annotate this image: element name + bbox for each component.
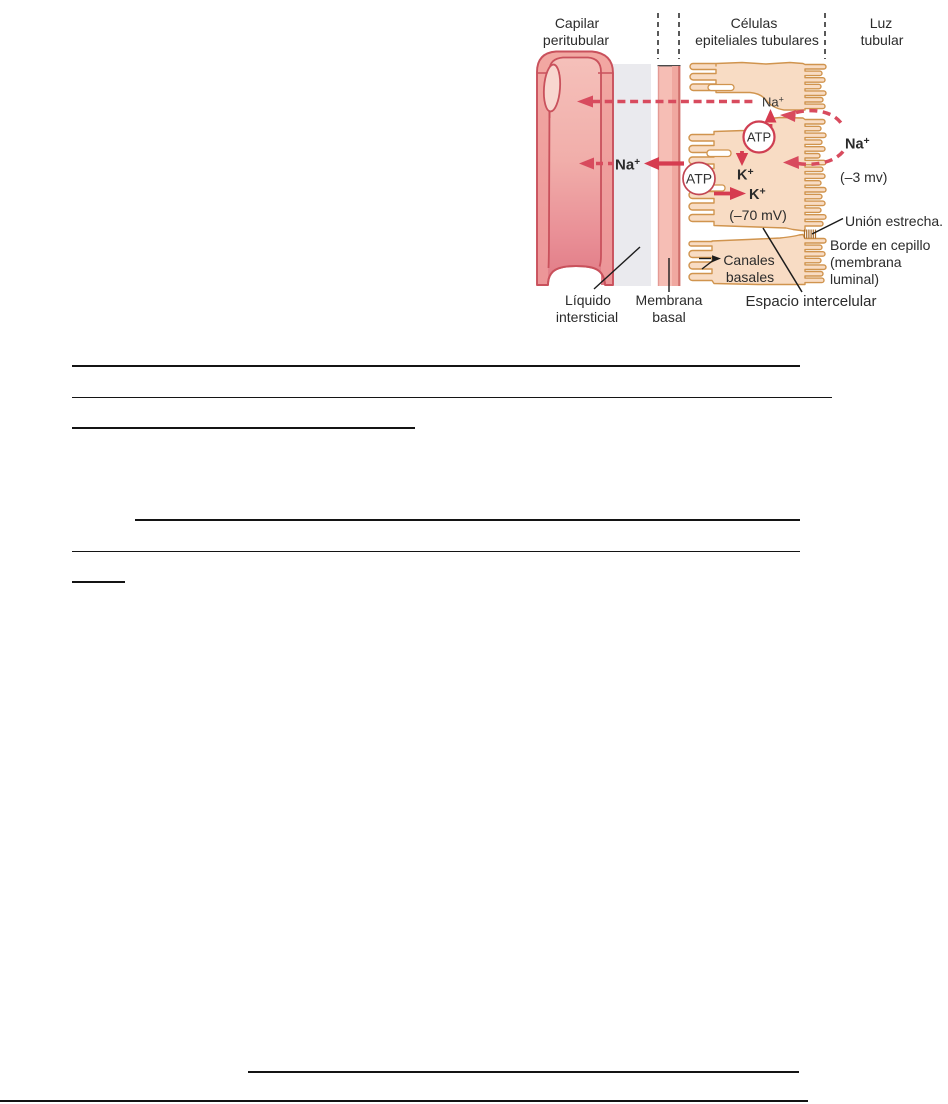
svg-text:(–3 mv): (–3 mv) (840, 169, 887, 185)
svg-text:Unión estrecha.: Unión estrecha. (845, 213, 943, 229)
svg-text:basal: basal (652, 309, 685, 325)
svg-text:ATP: ATP (686, 171, 712, 187)
svg-text:Canales: Canales (723, 252, 774, 268)
svg-text:epiteliales tubulares: epiteliales tubulares (695, 32, 819, 48)
svg-text:Células: Células (731, 15, 778, 31)
svg-text:Luz: Luz (870, 15, 893, 31)
svg-text:Na+: Na+ (845, 135, 870, 153)
svg-text:Capilar: Capilar (555, 15, 600, 31)
svg-text:(membrana: (membrana (830, 254, 902, 270)
svg-text:Líquido: Líquido (565, 292, 611, 308)
svg-text:ATP: ATP (747, 130, 771, 145)
svg-text:intersticial: intersticial (556, 309, 618, 325)
svg-text:peritubular: peritubular (543, 32, 609, 48)
svg-text:Borde en cepillo: Borde en cepillo (830, 237, 931, 253)
svg-text:tubular: tubular (861, 32, 904, 48)
svg-text:(–70 mV): (–70 mV) (729, 207, 787, 223)
svg-text:Membrana: Membrana (636, 292, 703, 308)
svg-text:Espacio intercelular: Espacio intercelular (746, 293, 877, 310)
svg-text:luminal): luminal) (830, 271, 879, 287)
svg-text:basales: basales (726, 269, 774, 285)
